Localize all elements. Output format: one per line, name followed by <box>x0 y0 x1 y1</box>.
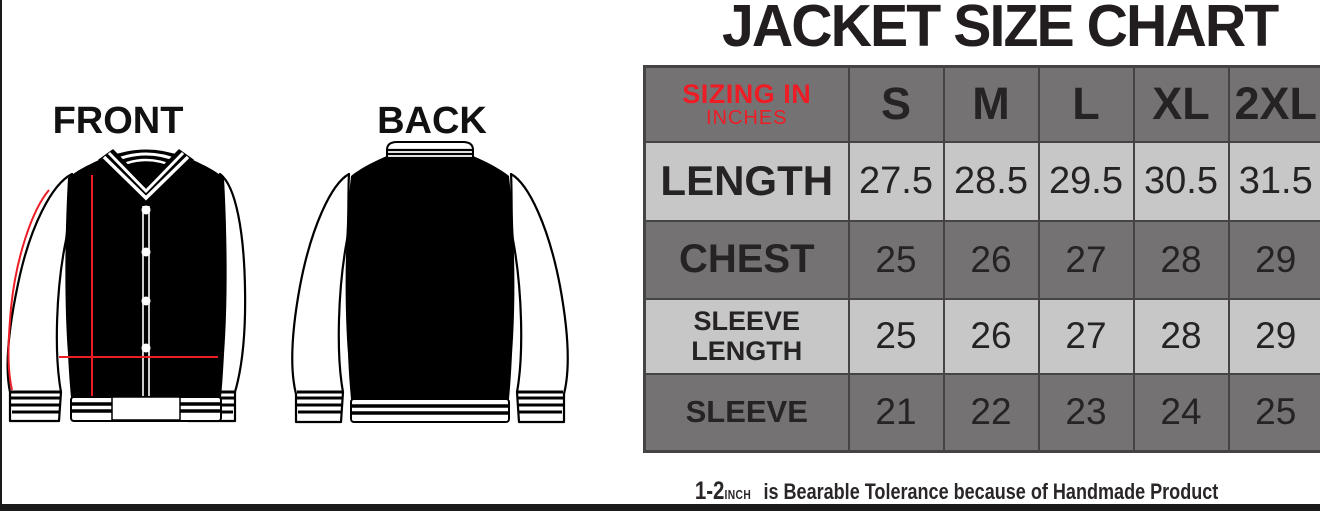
value-cell: 31.5 <box>1229 142 1320 221</box>
size-col-l: L <box>1039 67 1134 142</box>
value-cell: 23 <box>1039 374 1134 452</box>
page-title: JACKET SIZE CHART <box>722 0 1277 60</box>
value-cell: 28 <box>1134 299 1229 374</box>
front-jacket-icon <box>2 140 247 432</box>
back-jacket-illustration <box>287 140 585 432</box>
table-header-row: SIZING IN INCHES S M L XL 2XL <box>645 67 1320 142</box>
tolerance-value: 1-2 <box>695 477 725 505</box>
image-bottom-border <box>0 504 1320 511</box>
jacket-size-chart-page: { "colors":{ "dark":"#747273","light":"#… <box>0 0 1320 511</box>
value-cell: 28.5 <box>944 142 1039 221</box>
value-cell: 27.5 <box>849 142 944 221</box>
back-view-label: BACK <box>332 100 532 143</box>
back-jacket-icon <box>287 140 585 432</box>
table-row-length: LENGTH 27.5 28.5 29.5 30.5 31.5 <box>645 142 1320 221</box>
table-row-sleeve: SLEEVE 21 22 23 24 25 <box>645 374 1320 452</box>
size-col-2xl: 2XL <box>1229 67 1320 142</box>
value-cell: 24 <box>1134 374 1229 452</box>
front-jacket-illustration <box>2 140 247 432</box>
size-chart-table: SIZING IN INCHES S M L XL 2XL LENGTH 27.… <box>643 65 1320 453</box>
value-cell: 26 <box>944 299 1039 374</box>
value-cell: 27 <box>1039 221 1134 299</box>
sizing-unit-cell: SIZING IN INCHES <box>645 67 849 142</box>
value-cell: 29.5 <box>1039 142 1134 221</box>
row-label: SLEEVE <box>645 374 849 452</box>
value-cell: 30.5 <box>1134 142 1229 221</box>
row-label: LENGTH <box>645 142 849 221</box>
tolerance-text: is Bearable Tolerance because of Handmad… <box>763 479 1218 505</box>
row-label: SLEEVE LENGTH <box>645 299 849 374</box>
value-cell: 25 <box>849 221 944 299</box>
value-cell: 25 <box>849 299 944 374</box>
value-cell: 27 <box>1039 299 1134 374</box>
table-row-chest: CHEST 25 26 27 28 29 <box>645 221 1320 299</box>
size-col-s: S <box>849 67 944 142</box>
value-cell: 22 <box>944 374 1039 452</box>
tolerance-unit: INCH <box>724 488 751 502</box>
size-col-xl: XL <box>1134 67 1229 142</box>
value-cell: 28 <box>1134 221 1229 299</box>
size-col-m: M <box>944 67 1039 142</box>
inches-label: INCHES <box>646 108 848 129</box>
table-row-sleeve-length: SLEEVE LENGTH 25 26 27 28 29 <box>645 299 1320 374</box>
value-cell: 26 <box>944 221 1039 299</box>
front-view-label: FRONT <box>2 100 234 143</box>
value-cell: 29 <box>1229 221 1320 299</box>
value-cell: 29 <box>1229 299 1320 374</box>
row-label: CHEST <box>645 221 849 299</box>
sizing-in-label: SIZING IN <box>646 80 848 108</box>
value-cell: 25 <box>1229 374 1320 452</box>
value-cell: 21 <box>849 374 944 452</box>
